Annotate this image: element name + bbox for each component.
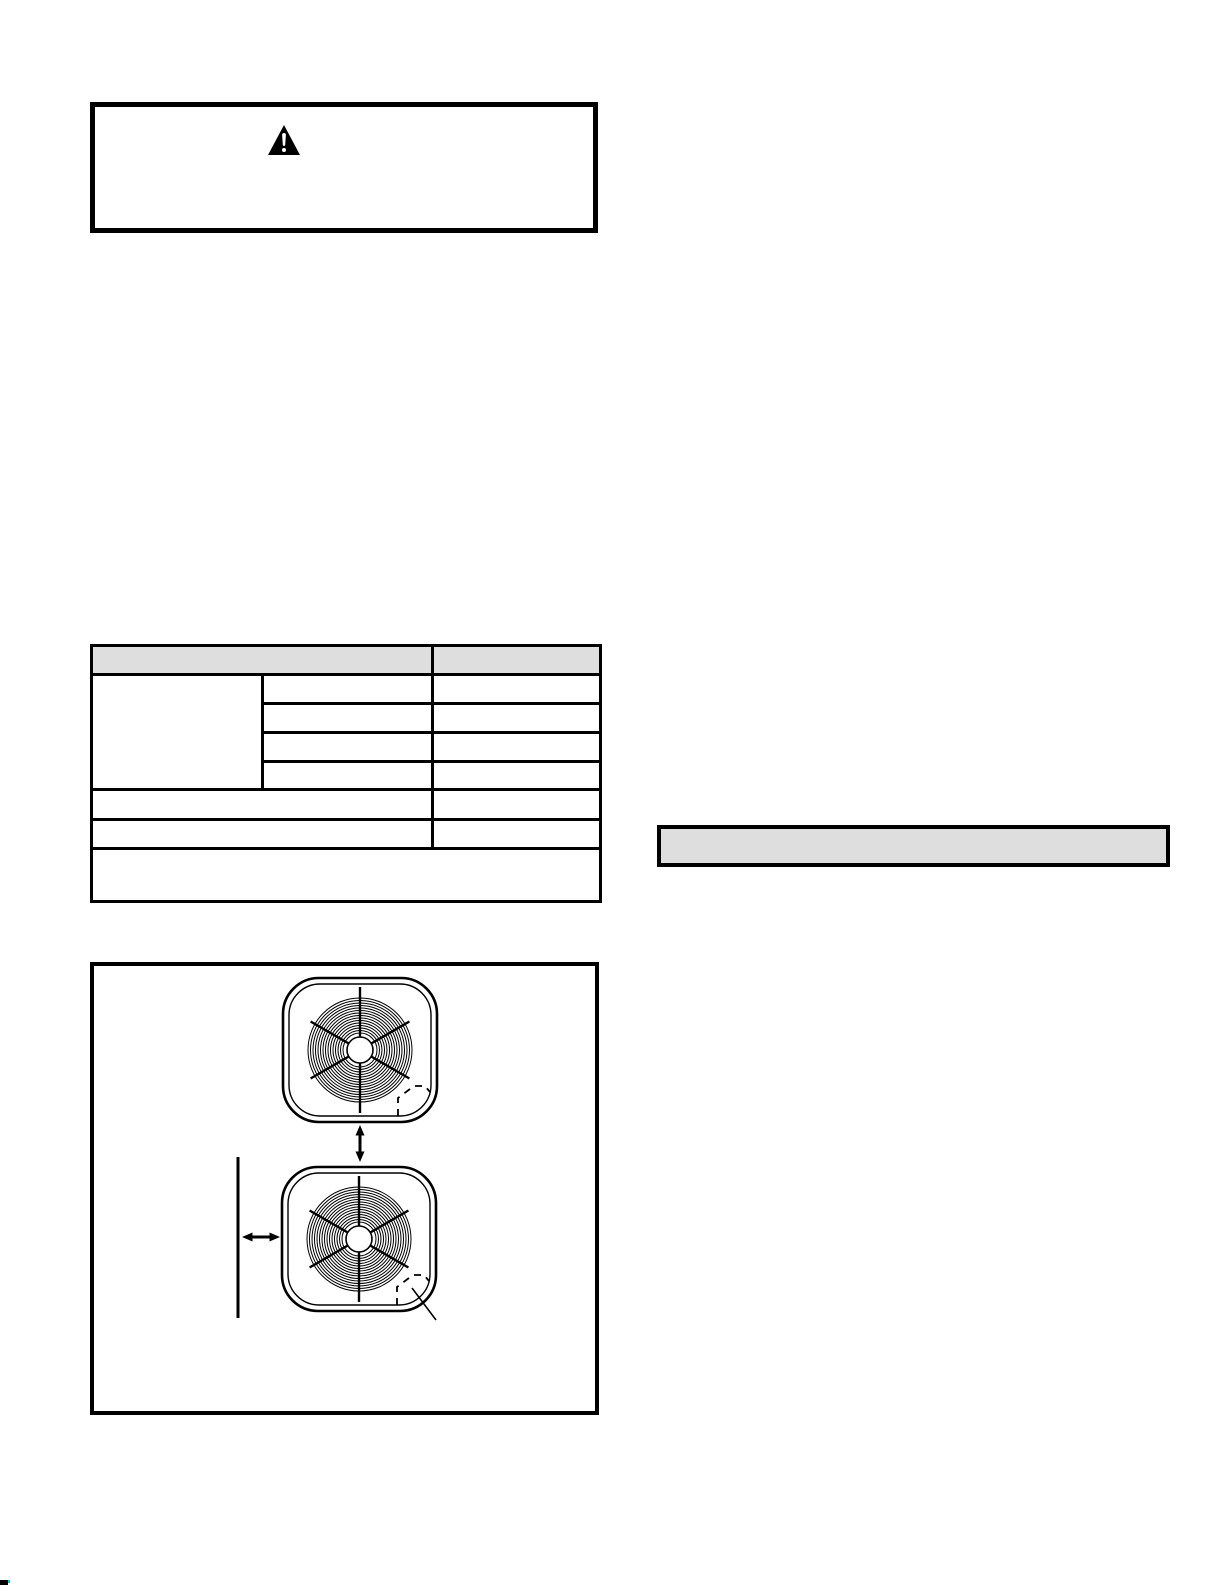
page: { "page": { "background": "#ffffff", "in… [0, 0, 1225, 1585]
vertical-spacing-arrow-icon [356, 1125, 365, 1162]
wall-clearance-arrow-icon [242, 1233, 280, 1242]
table-cell [433, 790, 601, 820]
figure-box [90, 962, 599, 1415]
table-footer-cell [92, 849, 601, 902]
table-cell [263, 762, 433, 790]
fan-clearance-diagram [94, 966, 595, 1411]
table-cell [433, 675, 601, 704]
table-header-cell-left [92, 646, 433, 675]
table-footer-row [92, 849, 601, 902]
fan-unit-top [283, 978, 437, 1122]
table-wide-cell [92, 820, 433, 849]
table-cell [263, 733, 433, 762]
table-row [92, 675, 601, 704]
table-header-cell-right [433, 646, 601, 675]
warning-triangle-icon [267, 124, 301, 157]
table-cell [433, 704, 601, 733]
warning-box [90, 102, 598, 233]
table-wide-cell [92, 790, 433, 820]
table-cell [433, 762, 601, 790]
registration-mark-accent [8, 1580, 10, 1583]
section-highlight-bar [657, 825, 1170, 867]
table-header-row [92, 646, 601, 675]
table-row [92, 790, 601, 820]
table-cell [263, 704, 433, 733]
spec-table [90, 644, 602, 903]
registration-mark [0, 1580, 8, 1585]
table-cell [433, 820, 601, 849]
table-merged-left-cell [92, 675, 263, 790]
table-cell [263, 675, 433, 704]
table-row [92, 820, 601, 849]
table-cell [433, 733, 601, 762]
